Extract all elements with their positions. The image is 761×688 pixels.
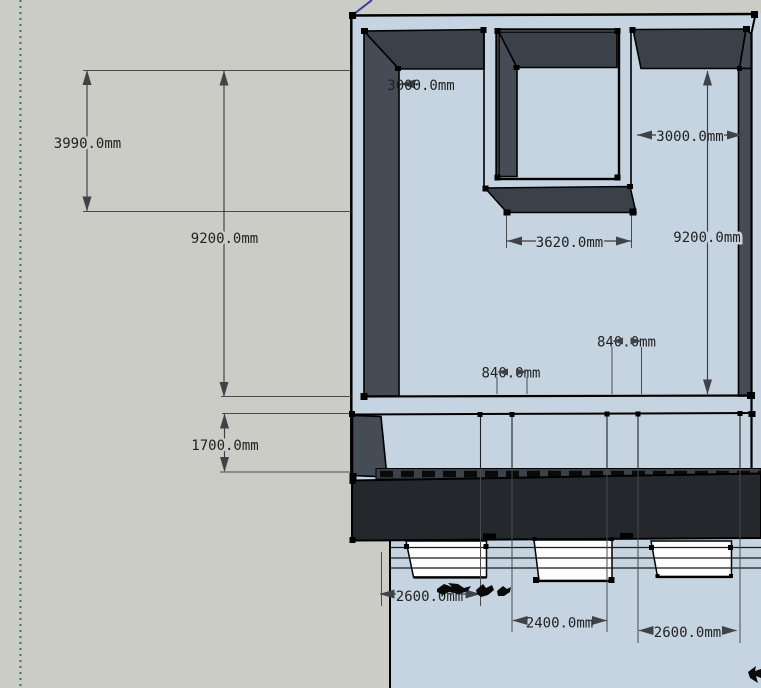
dimension-3000-left[interactable]: 3000.0mm xyxy=(387,78,454,94)
slab-tick-left xyxy=(483,534,496,540)
facade-windows[interactable] xyxy=(406,540,732,581)
dim-label[interactable]: 9200.0mm xyxy=(673,230,740,246)
dim-label[interactable]: 840.0mm xyxy=(481,366,540,382)
model-floor[interactable] xyxy=(352,14,761,688)
window-right[interactable] xyxy=(651,541,732,577)
dim-label[interactable]: 2600.0mm xyxy=(654,625,721,641)
dimension-840-left[interactable]: 840.0mm xyxy=(481,366,540,382)
dim-label[interactable]: 2400.0mm xyxy=(526,616,593,632)
dim-label[interactable]: 9200.0mm xyxy=(191,231,258,247)
dim-label[interactable]: 3620.0mm xyxy=(536,235,603,251)
dim-label[interactable]: 3990.0mm xyxy=(54,136,121,152)
window-middle[interactable] xyxy=(534,540,612,581)
window-left[interactable] xyxy=(406,541,487,577)
recess-bottom-wall[interactable] xyxy=(485,187,636,213)
drawing-canvas[interactable]: 3990.0mm 9200.0mm 1700.0mm 3000.0mm 3000… xyxy=(0,0,761,688)
facade-slab[interactable] xyxy=(352,474,761,541)
dim-label[interactable]: 840.0mm xyxy=(597,335,656,351)
dimension-840-right[interactable]: 840.0mm xyxy=(597,335,656,351)
model-viewport[interactable]: 3990.0mm 9200.0mm 1700.0mm 3000.0mm 3000… xyxy=(0,0,761,688)
dim-label[interactable]: 3000.0mm xyxy=(387,78,454,94)
slab-tick-right xyxy=(620,533,633,539)
dim-label[interactable]: 3000.0mm xyxy=(656,129,723,145)
dimension-2400[interactable]: 2400.0mm xyxy=(513,616,608,632)
dim-label[interactable]: 1700.0mm xyxy=(191,438,258,454)
